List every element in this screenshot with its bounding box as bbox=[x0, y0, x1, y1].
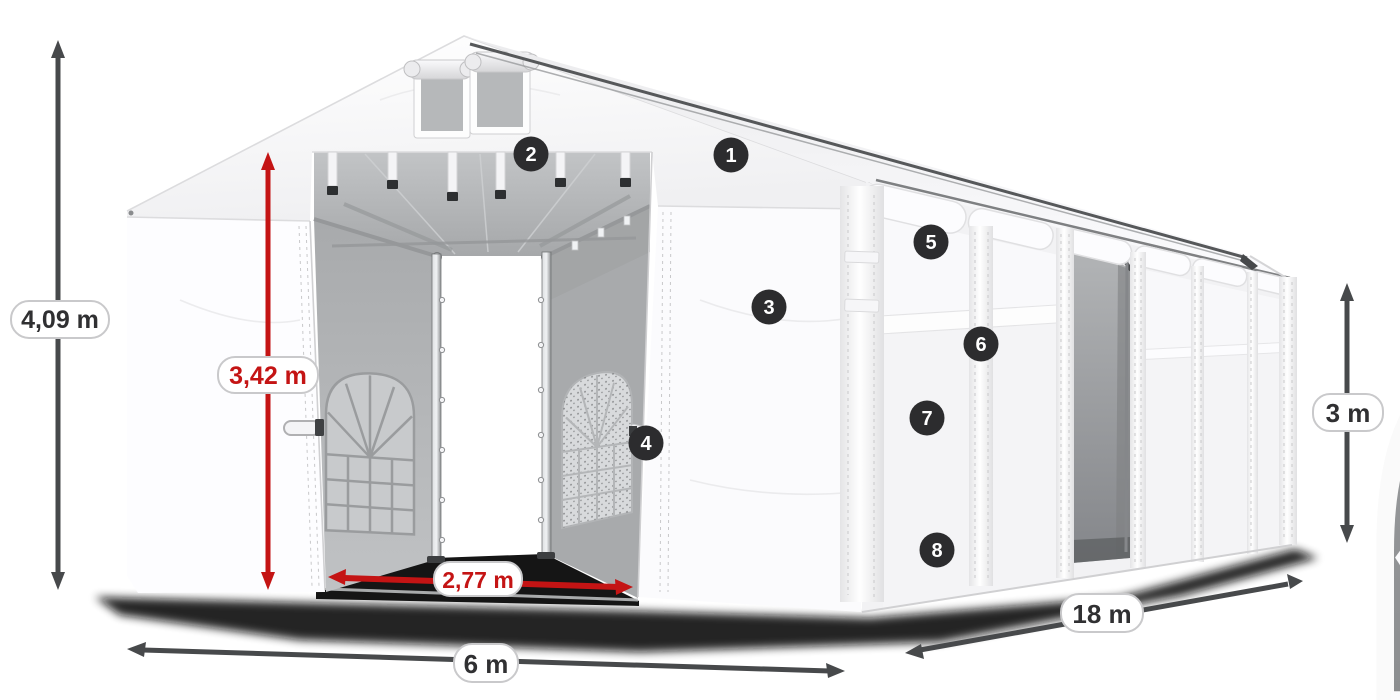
entrance-width-label: 2,77 m bbox=[442, 567, 514, 593]
svg-text:7: 7 bbox=[921, 408, 932, 430]
side-doorway-opening bbox=[1072, 242, 1132, 563]
front-left-door-panel bbox=[127, 217, 325, 593]
front-width-label: 6 m bbox=[464, 649, 509, 679]
svg-text:8: 8 bbox=[931, 540, 942, 562]
dimension-wall-height: 3 m bbox=[1313, 283, 1383, 543]
mesh-window bbox=[562, 368, 632, 528]
callout-badge-2[interactable]: 2 bbox=[514, 137, 549, 172]
callout-badge-6[interactable]: 6 bbox=[964, 327, 999, 362]
svg-text:3: 3 bbox=[763, 297, 774, 319]
side-lower-far bbox=[1134, 344, 1293, 570]
svg-text:4: 4 bbox=[640, 433, 652, 455]
svg-text:2: 2 bbox=[525, 144, 536, 166]
svg-text:5: 5 bbox=[925, 232, 936, 254]
side-length-label: 18 m bbox=[1072, 599, 1131, 629]
interior-window bbox=[326, 370, 414, 536]
gable-vent-left bbox=[404, 60, 476, 138]
svg-text:1: 1 bbox=[725, 145, 736, 167]
callout-badge-1[interactable]: 1 bbox=[714, 138, 749, 173]
svg-text:6: 6 bbox=[975, 334, 986, 356]
tent-interior bbox=[314, 152, 650, 606]
tent-dimension-diagram: 4,09 m 3,42 m 2,77 m 6 m 18 m 3 m bbox=[0, 0, 1400, 700]
wall-height-label: 3 m bbox=[1326, 398, 1371, 428]
callout-badge-5[interactable]: 5 bbox=[914, 225, 949, 260]
callout-badge-3[interactable]: 3 bbox=[752, 290, 787, 325]
rear-pole-right bbox=[542, 252, 551, 556]
entrance-height-label: 3,42 m bbox=[229, 362, 307, 390]
callout-badge-7[interactable]: 7 bbox=[910, 401, 945, 436]
door-handle bbox=[284, 419, 324, 436]
dimension-ridge-height: 4,09 m bbox=[11, 40, 109, 590]
callout-badge-8[interactable]: 8 bbox=[920, 533, 955, 568]
gable-vent-right bbox=[465, 52, 539, 134]
ridge-height-label: 4,09 m bbox=[21, 306, 99, 334]
diagram-canvas: 4,09 m 3,42 m 2,77 m 6 m 18 m 3 m bbox=[0, 0, 1400, 700]
callout-badge-4[interactable]: 4 bbox=[629, 426, 664, 461]
front-right-door-panel bbox=[638, 206, 866, 612]
